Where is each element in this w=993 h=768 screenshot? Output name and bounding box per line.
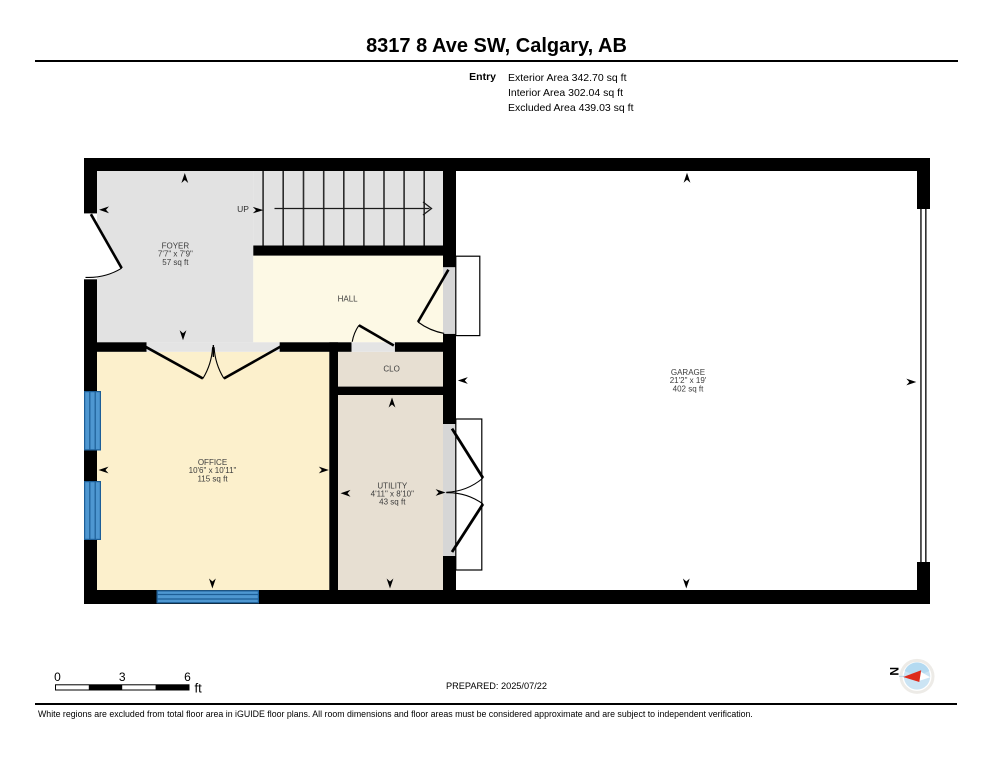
- svg-text:UP: UP: [237, 204, 249, 214]
- svg-text:0: 0: [54, 670, 61, 684]
- svg-text:CLO: CLO: [383, 365, 399, 374]
- svg-text:White regions are excluded fro: White regions are excluded from total fl…: [38, 709, 753, 719]
- svg-text:115 sq ft: 115 sq ft: [197, 474, 228, 483]
- svg-text:6: 6: [184, 670, 191, 684]
- svg-text:43 sq ft: 43 sq ft: [379, 498, 406, 507]
- svg-text:HALL: HALL: [338, 294, 359, 303]
- svg-text:N: N: [887, 667, 901, 676]
- svg-text:3: 3: [119, 670, 126, 684]
- svg-text:57 sq ft: 57 sq ft: [162, 258, 189, 267]
- svg-text:ft: ft: [195, 681, 203, 696]
- svg-text:402 sq ft: 402 sq ft: [673, 384, 704, 393]
- svg-text:PREPARED: 2025/07/22: PREPARED: 2025/07/22: [446, 681, 547, 691]
